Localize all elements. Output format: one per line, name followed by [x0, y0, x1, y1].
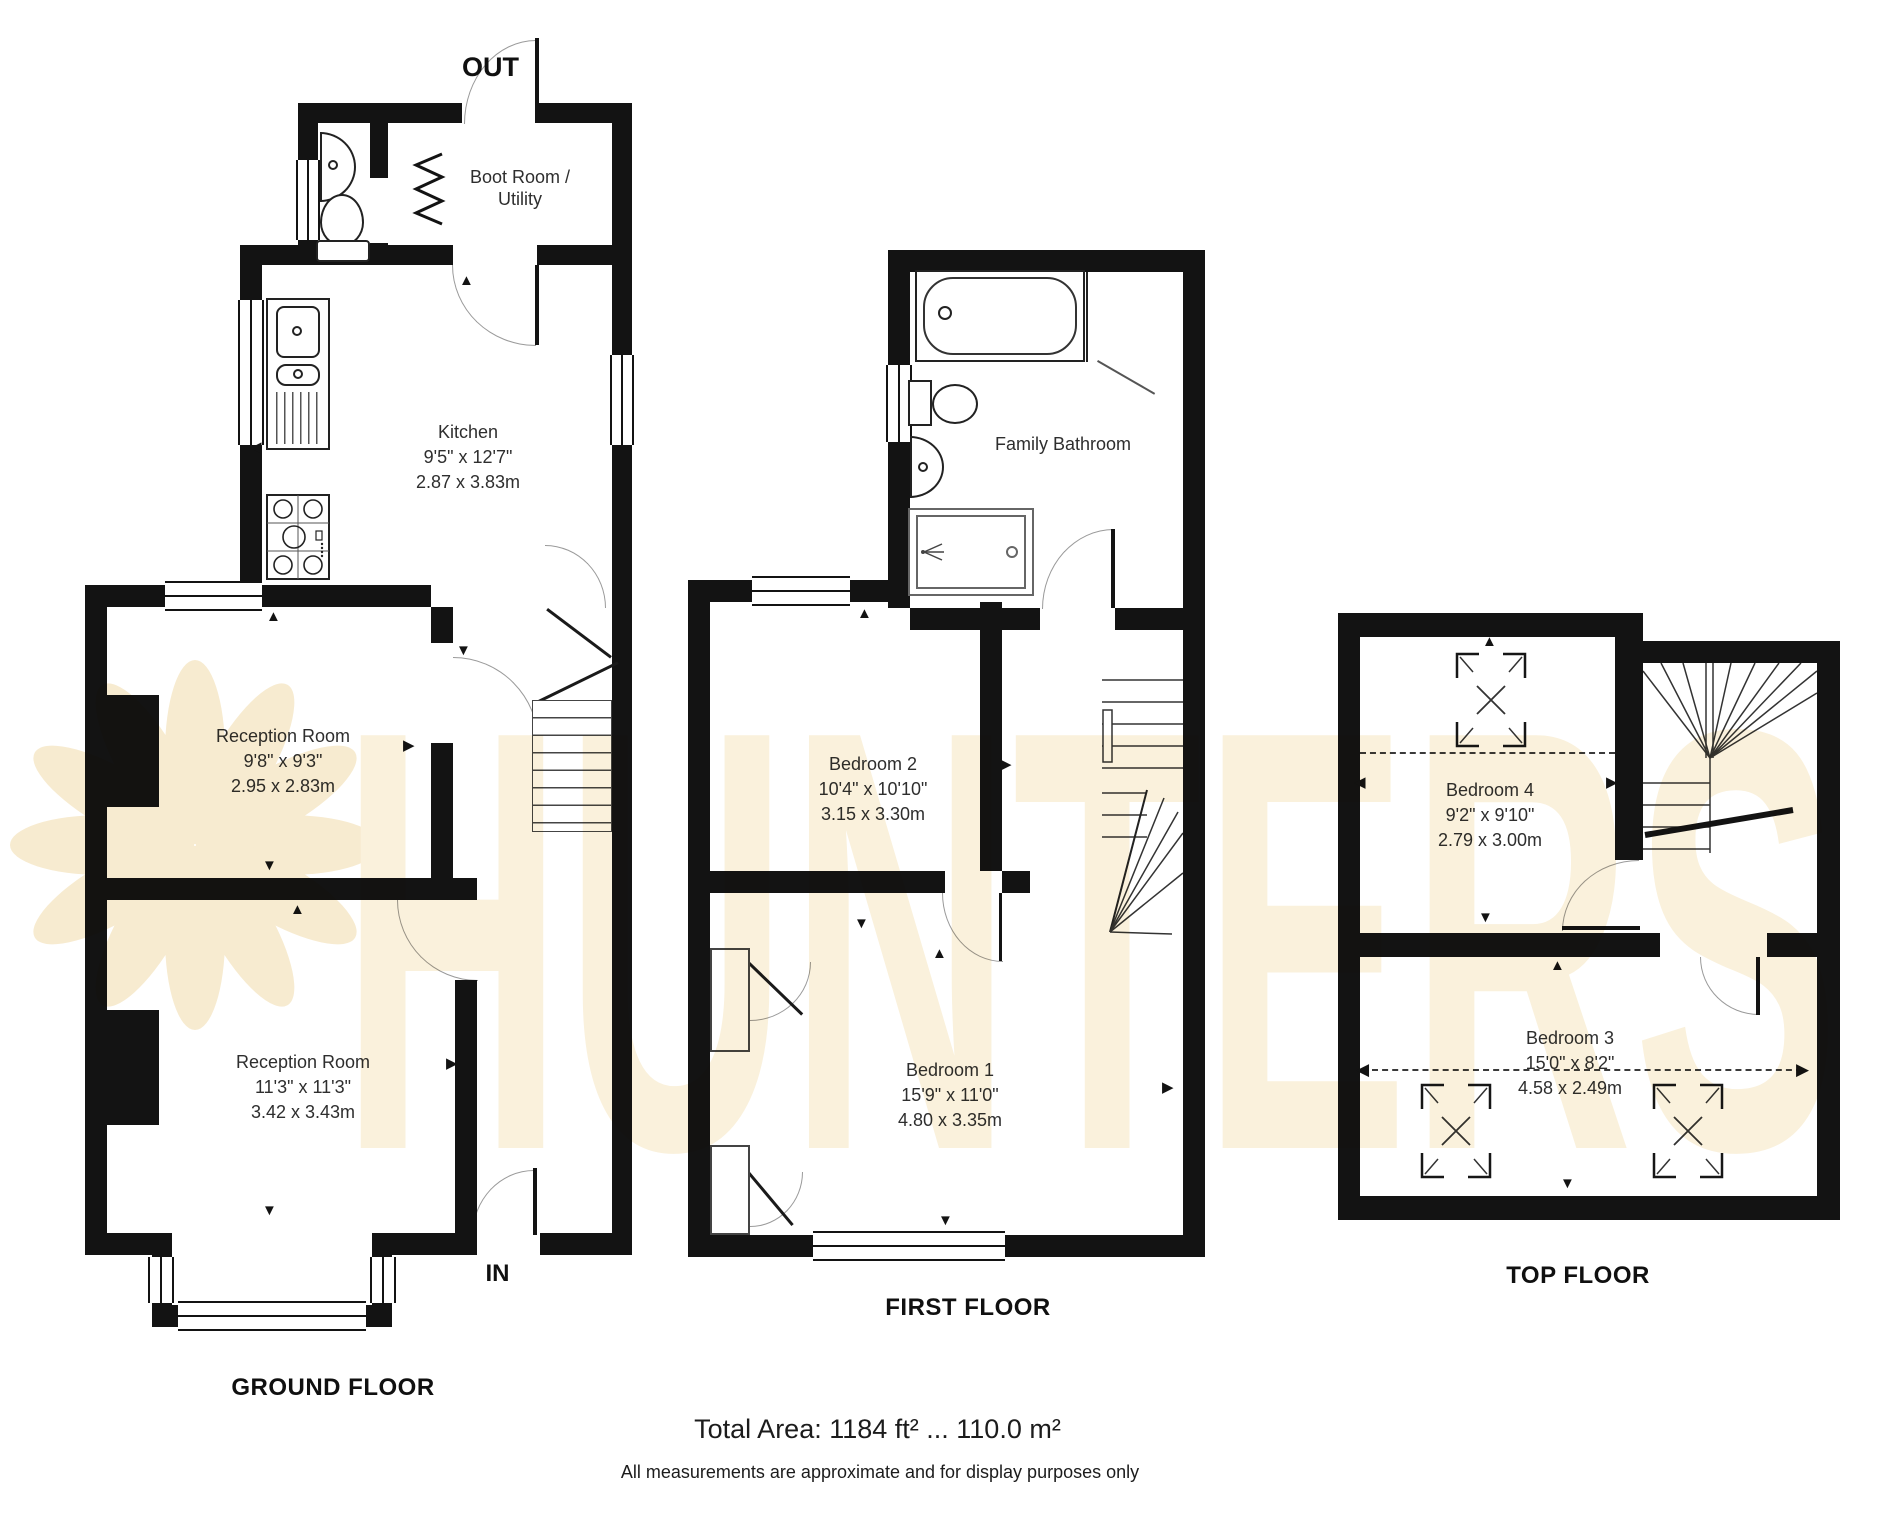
bedroom2-label: Bedroom 2 10'4" x 10'10" 3.15 x 3.30m: [783, 752, 963, 827]
wall: [1767, 933, 1817, 957]
cupboard-divider: [1086, 272, 1088, 362]
direction-arrow: ▼: [1560, 1176, 1575, 1191]
top-floor-title: TOP FLOOR: [1448, 1262, 1708, 1290]
room-size-imperial: 9'8" x 9'3": [193, 749, 373, 774]
wall: [262, 585, 431, 607]
wall: [888, 442, 910, 608]
direction-arrow: ▲: [1550, 958, 1565, 973]
wall: [85, 585, 165, 607]
door-leaf: [546, 608, 612, 659]
window: [165, 581, 262, 611]
first-floor-title: FIRST FLOOR: [838, 1294, 1098, 1322]
wall: [240, 445, 262, 585]
toilet-icon: [320, 194, 364, 246]
direction-arrow: ◀: [1354, 775, 1366, 790]
bedroom3-label: Bedroom 3 15'0" x 8'2" 4.58 x 2.49m: [1480, 1026, 1660, 1101]
room-size-metric: 4.58 x 2.49m: [1480, 1076, 1660, 1101]
wall: [85, 1233, 152, 1255]
wall: [431, 743, 453, 890]
ceiling-height-line: [1360, 752, 1615, 754]
door-arc: [472, 1170, 534, 1236]
direction-arrow: ▲: [857, 606, 872, 621]
disclaimer: All measurements are approximate and for…: [560, 1462, 1200, 1483]
direction-arrow: ▶: [446, 1056, 458, 1071]
ground-floor-title: GROUND FLOOR: [203, 1374, 463, 1402]
wall: [107, 878, 477, 900]
wall: [612, 103, 632, 355]
direction-arrow: ▲: [290, 902, 305, 917]
wall: [298, 103, 462, 123]
bay-window-side: [148, 1257, 174, 1303]
room-name: Bedroom 1: [860, 1058, 1040, 1083]
door-leaf: [999, 893, 1002, 961]
wall: [370, 123, 388, 178]
direction-arrow: ▶: [403, 738, 415, 753]
door-arc: [453, 657, 539, 744]
wall: [850, 580, 888, 602]
door-leaf: [1756, 957, 1760, 1015]
wall: [1817, 641, 1840, 1220]
chimney-breast: [107, 695, 159, 807]
room-name: Reception Room: [193, 724, 373, 749]
room-size-imperial: 9'5" x 12'7": [378, 445, 558, 470]
wall: [1338, 933, 1660, 957]
room-size-imperial: 11'3" x 11'3": [213, 1075, 393, 1100]
room-size-metric: 2.79 x 3.00m: [1400, 828, 1580, 853]
wall: [298, 123, 318, 160]
room-name-2: Utility: [427, 188, 613, 210]
door-arc: [942, 893, 1003, 962]
basin-drain: [328, 160, 338, 170]
wall: [1643, 641, 1840, 663]
wall: [1338, 1196, 1840, 1220]
room-size-imperial: 10'4" x 10'10": [783, 777, 963, 802]
direction-arrow: ▶: [1162, 1080, 1174, 1095]
wall: [1115, 608, 1183, 630]
sink-drain: [293, 369, 303, 379]
room-size-metric: 3.42 x 3.43m: [213, 1100, 393, 1125]
door-arc: [1562, 860, 1639, 931]
staircase: [1643, 663, 1817, 933]
kitchen-label: Kitchen 9'5" x 12'7" 2.87 x 3.83m: [378, 420, 558, 495]
door-leaf: [535, 265, 539, 345]
room-name: Bedroom 3: [1480, 1026, 1660, 1051]
door-arc: [545, 545, 606, 608]
direction-arrow: ▲: [459, 273, 474, 288]
in-label: IN: [470, 1260, 525, 1288]
wall: [540, 1233, 632, 1255]
direction-arrow: ▲: [266, 609, 281, 624]
room-name: Kitchen: [378, 420, 558, 445]
cupboard-door-line: [1097, 360, 1155, 395]
direction-arrow: ▼: [262, 858, 277, 873]
direction-arrow: ▲: [932, 946, 947, 961]
door-arc: [1700, 957, 1759, 1015]
wall: [431, 607, 453, 643]
total-area: Total Area: 1184 ft² ... 110.0 m²: [565, 1414, 1190, 1445]
out-label: OUT: [438, 52, 543, 83]
window: [238, 300, 264, 445]
shower-drain: [1006, 546, 1018, 558]
room-size-imperial: 15'0" x 8'2": [1480, 1051, 1660, 1076]
bath-drain: [938, 306, 952, 320]
bathroom-label: Family Bathroom: [973, 432, 1153, 457]
direction-arrow: ▲: [1482, 634, 1497, 649]
floorplan-canvas: OUT Boot Room / Utility ▲: [0, 0, 1888, 1515]
direction-arrow: ▶: [1796, 1061, 1809, 1078]
direction-arrow: ▶: [1000, 757, 1012, 772]
shower-head-icon: [920, 541, 946, 563]
wall: [1338, 637, 1360, 1220]
door-leaf: [533, 1168, 537, 1235]
toilet-cistern: [908, 380, 932, 426]
room-name: Bedroom 2: [783, 752, 963, 777]
sink-drainer: [276, 392, 320, 444]
reception1-label: Reception Room 9'8" x 9'3" 2.95 x 2.83m: [193, 724, 373, 799]
sink-drain: [292, 326, 302, 336]
flower-icon: [10, 660, 380, 1030]
toilet-icon: [932, 384, 978, 424]
door-arc: [1042, 529, 1114, 609]
room-name: Boot Room /: [427, 166, 613, 188]
direction-arrow: ▼: [1478, 910, 1493, 925]
room-name: Family Bathroom: [973, 432, 1153, 457]
room-size-metric: 2.87 x 3.83m: [378, 470, 558, 495]
direction-arrow: ▼: [456, 643, 471, 658]
bay-window-side: [370, 1257, 396, 1303]
direction-arrow: ▼: [854, 916, 869, 931]
basin-drain: [918, 462, 928, 472]
cupboard: [710, 1145, 750, 1235]
room-size-imperial: 9'2" x 9'10": [1400, 803, 1580, 828]
direction-arrow: ◀: [1356, 1061, 1369, 1078]
wall: [85, 607, 107, 1233]
direction-arrow: ◀: [250, 440, 262, 455]
wall: [1615, 637, 1643, 860]
wall: [980, 602, 1002, 871]
room-size-metric: 3.15 x 3.30m: [783, 802, 963, 827]
window: [813, 1231, 1005, 1261]
wall: [455, 980, 477, 1233]
direction-arrow: ▶: [1606, 775, 1618, 790]
window: [752, 576, 850, 606]
bedroom1-label: Bedroom 1 15'9" x 11'0" 4.80 x 3.35m: [860, 1058, 1040, 1133]
wall: [537, 245, 612, 265]
reception2-label: Reception Room 11'3" x 11'3" 3.42 x 3.43…: [213, 1050, 393, 1125]
door-arc: [397, 900, 478, 981]
wall: [888, 272, 910, 365]
wall: [240, 245, 262, 300]
wall: [612, 445, 632, 607]
bedroom4-label: Bedroom 4 9'2" x 9'10" 2.79 x 3.00m: [1400, 778, 1580, 853]
room-name: Reception Room: [213, 1050, 393, 1075]
room-size-metric: 4.80 x 3.35m: [860, 1108, 1040, 1133]
window: [296, 160, 320, 240]
skylight-icon: [1455, 652, 1527, 748]
room-size-imperial: 15'9" x 11'0": [860, 1083, 1040, 1108]
direction-arrow: ▼: [262, 1203, 277, 1218]
skylight-icon: [1652, 1083, 1724, 1179]
wall: [1002, 871, 1030, 893]
staircase: [532, 700, 612, 832]
wall: [612, 607, 632, 1233]
door-leaf: [1562, 926, 1640, 930]
wall: [888, 250, 1205, 272]
hob-icon: [266, 494, 330, 580]
bay-window: [178, 1301, 366, 1331]
window: [610, 355, 634, 445]
wall: [910, 608, 1040, 630]
room-size-metric: 2.95 x 2.83m: [193, 774, 373, 799]
staircase: [1102, 658, 1183, 935]
wall: [688, 1235, 813, 1257]
toilet-cistern: [316, 240, 370, 262]
wash-basin-icon: [320, 132, 356, 202]
wall: [1005, 1235, 1205, 1257]
wall: [688, 580, 710, 1257]
chimney-breast: [107, 1010, 159, 1125]
direction-arrow: ▼: [938, 1213, 953, 1228]
wall: [688, 871, 945, 893]
door-arc: [750, 1172, 803, 1227]
cupboard: [710, 948, 750, 1052]
boot-room-label: Boot Room / Utility: [427, 166, 613, 210]
room-name: Bedroom 4: [1400, 778, 1580, 803]
wall: [1183, 250, 1205, 1257]
door-leaf: [1111, 529, 1115, 608]
